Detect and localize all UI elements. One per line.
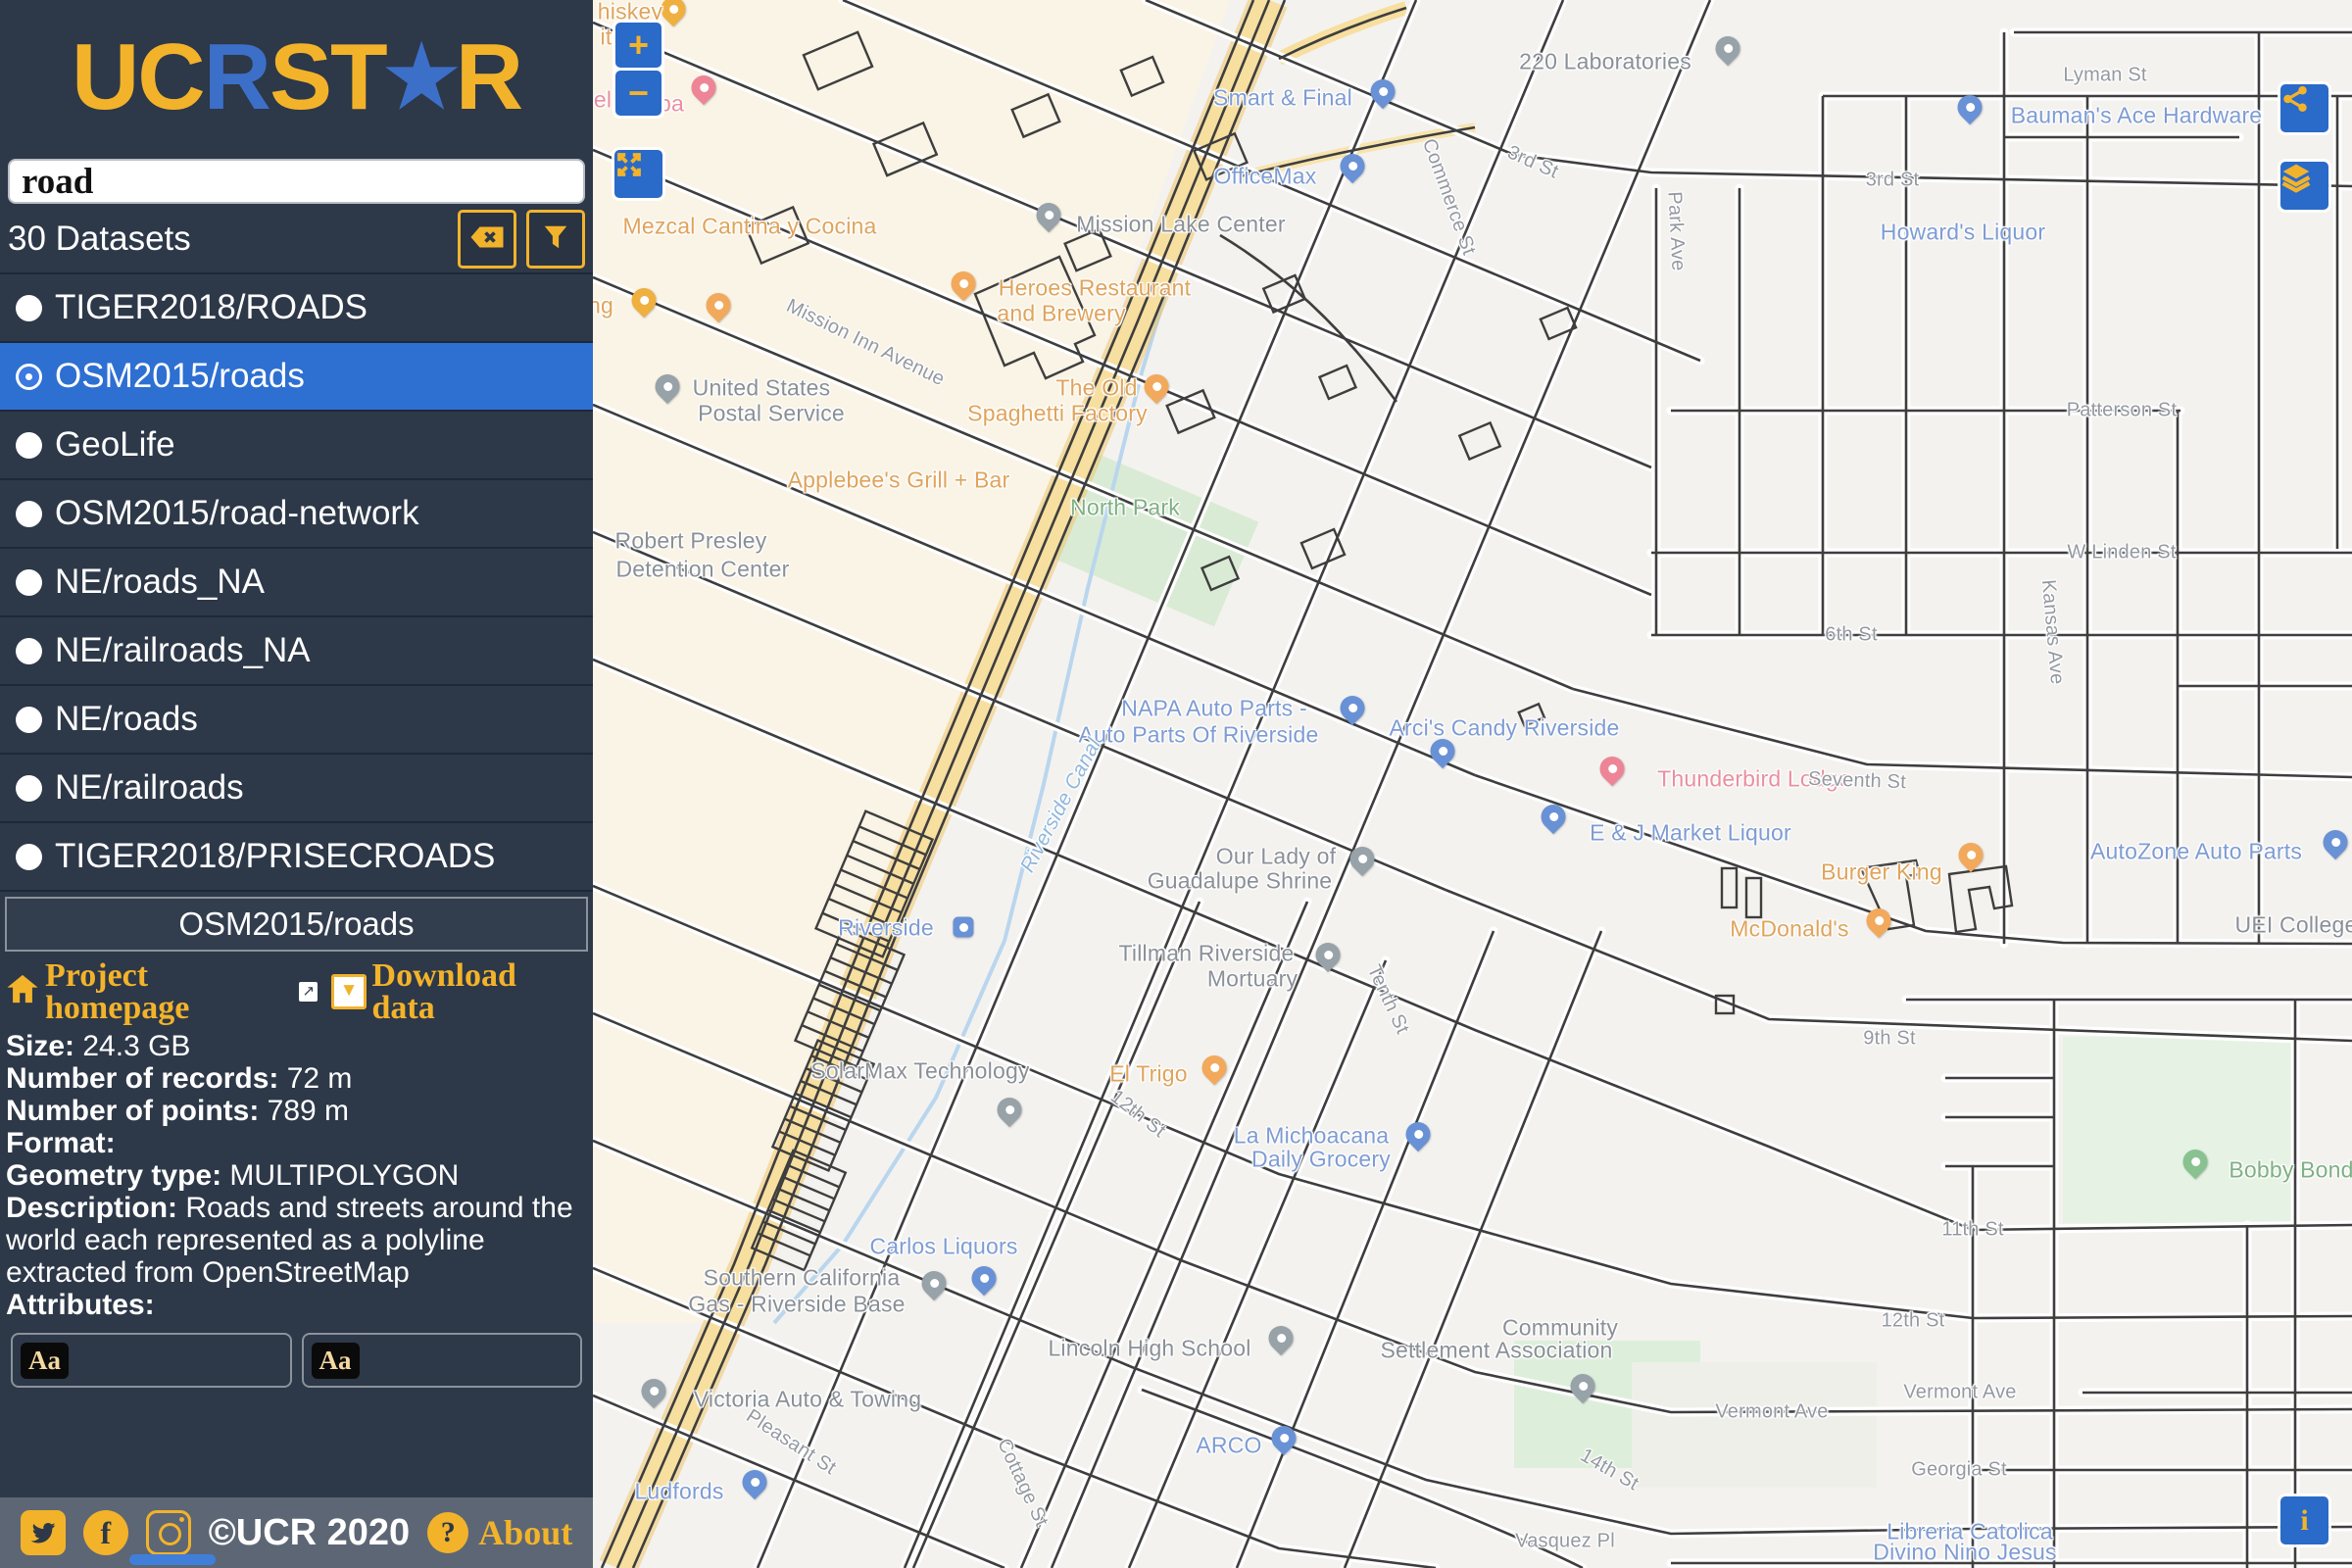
help-icon[interactable]: ? <box>427 1512 468 1553</box>
dataset-radio[interactable] <box>16 707 42 733</box>
zoom-in-button[interactable]: + <box>615 23 661 68</box>
zoom-controls: + − <box>612 20 664 119</box>
share-button[interactable] <box>2280 84 2328 132</box>
dataset-radio[interactable] <box>16 432 42 459</box>
attribute-filter-1[interactable]: Aa <box>11 1333 292 1388</box>
clear-search-button[interactable] <box>458 210 516 269</box>
dataset-label: NE/roads_NA <box>55 563 265 602</box>
selected-dataset-title: OSM2015/roads <box>5 897 588 952</box>
logo-uc: UC <box>72 24 204 131</box>
dataset-label: NE/roads <box>55 700 198 739</box>
about-link[interactable]: About <box>478 1512 572 1553</box>
dataset-radio[interactable] <box>16 295 42 321</box>
dataset-field: Attributes: <box>6 1289 587 1321</box>
dataset-radio[interactable] <box>16 501 42 527</box>
logo-st: ST <box>269 24 386 131</box>
dataset-label: OSM2015/roads <box>55 357 305 396</box>
backspace-icon <box>469 223 505 256</box>
app-logo: UCRST★R <box>0 0 593 155</box>
layers-icon <box>2280 162 2312 193</box>
copyright-text: ©UCR 2020 <box>209 1512 410 1554</box>
dataset-fields: Size: 24.3 GBNumber of records: 72 mNumb… <box>6 1030 587 1321</box>
sidebar-footer: f ©UCR 2020 ? About <box>0 1497 593 1568</box>
dataset-item-NE/railroads[interactable]: NE/railroads <box>0 755 593 823</box>
download-dropdown-icon[interactable]: ▼ <box>331 974 366 1009</box>
dataset-field: Size: 24.3 GB <box>6 1030 587 1062</box>
attribute-filter-2[interactable]: Aa <box>302 1333 583 1388</box>
dataset-label: GeoLife <box>55 425 175 465</box>
dataset-list: TIGER2018/ROADSOSM2015/roadsGeoLifeOSM20… <box>0 272 593 892</box>
dataset-field: Description: Roads and streets around th… <box>6 1192 587 1289</box>
map-pin-blue-transit[interactable] <box>954 917 974 938</box>
dataset-radio[interactable] <box>16 844 42 870</box>
sidebar: UCRST★R 30 Datasets TIGER2018/ROADSOSM20… <box>0 0 593 1568</box>
attribute-chip: Aa <box>312 1343 360 1379</box>
dataset-label: OSM2015/road-network <box>55 494 419 533</box>
logo-r-gold: R <box>456 24 521 131</box>
dataset-field: Number of points: 789 m <box>6 1095 587 1127</box>
dataset-item-NE/roads[interactable]: NE/roads <box>0 686 593 755</box>
twitter-icon[interactable] <box>21 1510 66 1555</box>
filter-button[interactable] <box>526 210 585 269</box>
search-input[interactable] <box>8 159 585 204</box>
dataset-radio[interactable] <box>16 638 42 664</box>
dataset-item-OSM2015/roads[interactable]: OSM2015/roads <box>0 343 593 412</box>
funnel-icon <box>541 222 570 257</box>
dataset-field: Format: <box>6 1127 587 1159</box>
datasets-count: 30 Datasets <box>8 220 448 259</box>
dataset-field: Number of records: 72 m <box>6 1062 587 1095</box>
horizontal-scrollbar[interactable] <box>129 1554 216 1565</box>
facebook-icon[interactable]: f <box>83 1510 128 1555</box>
expand-arrows-icon <box>614 150 644 179</box>
dataset-item-NE/railroads_NA[interactable]: NE/railroads_NA <box>0 617 593 686</box>
zoom-out-button[interactable]: − <box>615 71 661 116</box>
download-data-link[interactable]: Download data <box>372 959 581 1024</box>
dataset-item-TIGER2018/ROADS[interactable]: TIGER2018/ROADS <box>0 274 593 343</box>
dataset-item-NE/roads_NA[interactable]: NE/roads_NA <box>0 549 593 617</box>
dataset-radio[interactable] <box>16 569 42 596</box>
dataset-item-OSM2015/road-network[interactable]: OSM2015/road-network <box>0 480 593 549</box>
external-link-icon: ↗ <box>299 982 318 1002</box>
dataset-label: NE/railroads <box>55 768 244 808</box>
logo-star-icon: ★ <box>384 28 458 126</box>
dataset-label: TIGER2018/ROADS <box>55 288 367 327</box>
info-button[interactable]: i <box>2280 1496 2328 1544</box>
map-basemap <box>593 0 2352 1568</box>
dataset-item-TIGER2018/PRISECROADS[interactable]: TIGER2018/PRISECROADS <box>0 823 593 892</box>
dataset-details: Project homepage ↗ ▼ Download data Size:… <box>0 952 593 1388</box>
home-icon <box>6 973 39 1011</box>
dataset-radio[interactable] <box>16 775 42 802</box>
fullscreen-button[interactable] <box>614 150 662 198</box>
layers-button[interactable] <box>2280 162 2328 210</box>
dataset-label: TIGER2018/PRISECROADS <box>55 837 495 876</box>
instagram-icon[interactable] <box>146 1510 191 1555</box>
attribute-chip: Aa <box>21 1343 69 1379</box>
dataset-field: Geometry type: MULTIPOLYGON <box>6 1159 587 1192</box>
dataset-radio[interactable] <box>16 364 42 390</box>
map-canvas[interactable]: hiskeyitoelbaSmart & Final220 Laboratori… <box>593 0 2352 1568</box>
dataset-label: NE/railroads_NA <box>55 631 311 670</box>
logo-r-blue: R <box>204 24 269 131</box>
project-homepage-link[interactable]: Project homepage <box>45 959 293 1024</box>
dataset-item-GeoLife[interactable]: GeoLife <box>0 412 593 480</box>
ucr-star-app: UCRST★R 30 Datasets TIGER2018/ROADSOSM20… <box>0 0 2352 1568</box>
share-icon <box>2280 84 2310 114</box>
